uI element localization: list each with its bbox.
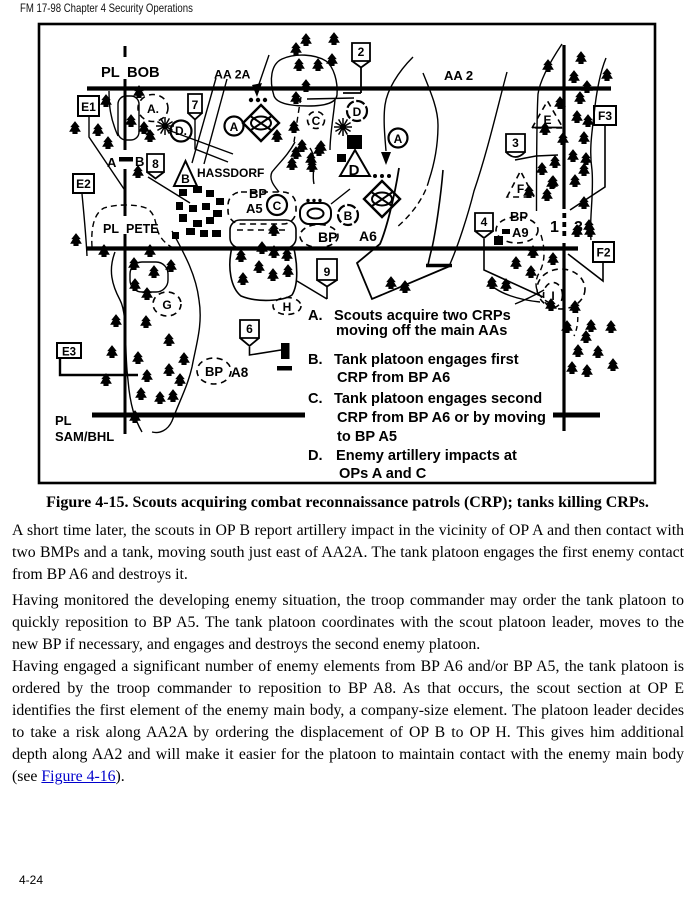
svg-text:C: C [273,199,282,213]
svg-text:7: 7 [192,98,199,112]
svg-text:C.: C. [308,391,323,407]
svg-text:E1: E1 [81,100,96,114]
svg-text:D.: D. [175,124,187,138]
svg-text:3: 3 [512,136,519,150]
svg-text:Tank platoon engages first: Tank platoon engages first [334,352,519,368]
svg-text:F3: F3 [598,109,612,123]
svg-text:AA 2A: AA 2A [214,68,251,82]
svg-text:BP: BP [318,229,337,245]
svg-text:E: E [543,113,551,127]
svg-text:A5: A5 [246,201,263,216]
svg-text:PL: PL [101,65,120,81]
svg-text:B: B [344,209,353,223]
svg-text:F: F [517,182,524,196]
svg-text:9: 9 [324,265,331,279]
svg-text:Tank platoon engages second: Tank platoon engages second [334,391,542,407]
svg-text:PL: PL [55,413,72,428]
svg-text:BP: BP [510,209,528,224]
svg-text:CRP from BP A6 or by moving: CRP from BP A6 or by moving [337,410,546,426]
svg-text:I: I [551,289,554,303]
svg-text:BOB: BOB [127,65,160,81]
svg-text:2: 2 [358,45,365,59]
svg-text:Enemy artillery impacts at: Enemy artillery impacts at [336,448,517,464]
svg-text:AA 2: AA 2 [444,68,473,83]
svg-text:D: D [353,105,362,119]
svg-text:Scouts acquire two CRPs: Scouts acquire two CRPs [334,308,511,324]
svg-text:A.: A. [308,308,323,324]
svg-text:SAM/BHL: SAM/BHL [55,429,114,444]
svg-text:E2: E2 [76,177,91,191]
svg-text:8: 8 [152,157,159,171]
svg-text:A: A [107,155,117,170]
svg-text:H: H [283,300,292,314]
svg-text:D.: D. [308,448,323,464]
svg-text:4: 4 [481,215,488,229]
svg-text:A.: A. [147,102,159,116]
svg-text:3: 3 [574,219,583,236]
svg-text:OPs A and C: OPs A and C [339,466,427,482]
svg-text:moving off the main AAs: moving off the main AAs [336,323,507,339]
svg-text:B: B [181,172,190,186]
svg-text:A: A [394,132,403,146]
svg-text:E3: E3 [62,347,76,359]
svg-text:D: D [349,162,360,179]
svg-text:BP: BP [205,364,223,379]
svg-text:to BP A5: to BP A5 [337,429,397,445]
svg-text:1: 1 [550,219,559,236]
svg-text:A9: A9 [512,225,529,240]
svg-text:G: G [162,298,171,312]
svg-text:BP: BP [249,186,267,201]
svg-text:C: C [312,114,321,128]
svg-text:HASSDORF: HASSDORF [197,166,264,180]
svg-text:F2: F2 [596,246,610,260]
svg-text:A6: A6 [359,228,377,244]
svg-text:PETE: PETE [126,222,159,236]
svg-text:6: 6 [246,322,253,336]
svg-text:A: A [230,120,239,134]
svg-text:CRP from BP A6: CRP from BP A6 [337,370,450,386]
svg-text:B: B [135,154,144,169]
svg-text:B.: B. [308,352,323,368]
svg-text:A8: A8 [231,365,249,380]
svg-text:PL: PL [103,222,119,236]
